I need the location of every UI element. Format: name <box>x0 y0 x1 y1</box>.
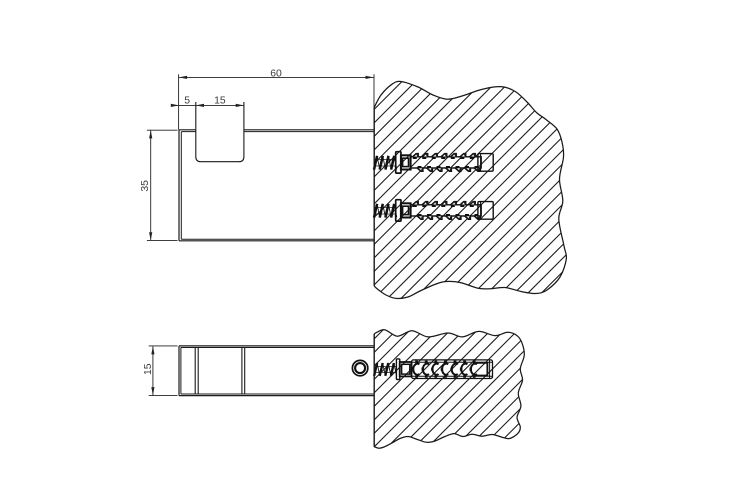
svg-text:35: 35 <box>140 180 151 192</box>
svg-text:15: 15 <box>143 363 154 375</box>
svg-text:15: 15 <box>214 96 226 107</box>
svg-text:60: 60 <box>270 69 282 80</box>
svg-text:5: 5 <box>184 96 190 107</box>
